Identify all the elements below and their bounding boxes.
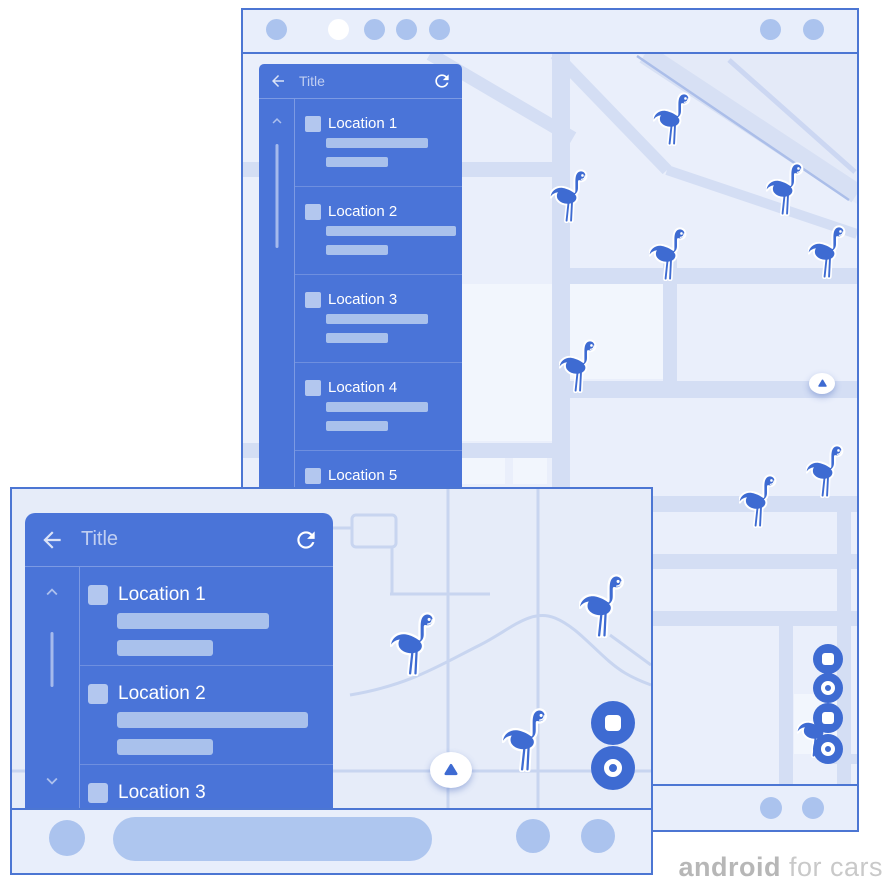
text-placeholder (326, 138, 428, 148)
place-icon (305, 380, 321, 396)
flamingo-marker-icon[interactable] (390, 612, 436, 676)
portrait-place-list-panel: Title Location 1 (259, 64, 462, 554)
place-icon (305, 292, 321, 308)
flamingo-marker-icon[interactable] (649, 227, 687, 281)
navbar-dot[interactable] (516, 819, 550, 853)
map-action-button-record[interactable] (813, 734, 843, 764)
navbar-pill[interactable] (113, 817, 432, 861)
panel-header: Title (25, 513, 333, 567)
item-label: Location 3 (118, 782, 206, 804)
item-label: Location 5 (328, 467, 397, 484)
map-action-button-stop[interactable] (813, 703, 843, 733)
list-item[interactable]: Location 1 (80, 567, 333, 666)
panel-header: Title (259, 64, 462, 99)
item-label: Location 2 (118, 683, 206, 705)
statusbar-dot[interactable] (396, 19, 417, 40)
item-label: Location 1 (328, 115, 397, 132)
location-list: Location 1 Location 2 Location 3 (80, 567, 333, 808)
text-placeholder (326, 314, 428, 324)
list-item[interactable]: Location 3 (80, 765, 333, 808)
landscape-map[interactable]: Title Location 1 (12, 489, 651, 808)
chevron-up-icon[interactable] (268, 112, 286, 130)
statusbar-dot[interactable] (803, 19, 824, 40)
text-placeholder (117, 613, 269, 629)
watermark-suffix: for cars (781, 852, 883, 882)
landscape-nav-bar (12, 808, 651, 873)
flamingo-marker-icon[interactable] (502, 708, 548, 772)
scroll-rail[interactable] (25, 567, 80, 808)
circle-icon (821, 681, 835, 695)
navigation-arrow-icon (441, 760, 461, 780)
navigation-arrow-icon (816, 377, 829, 390)
scrollbar-thumb[interactable] (51, 632, 54, 687)
circle-icon (604, 759, 622, 777)
refresh-icon[interactable] (293, 527, 319, 553)
place-icon (88, 783, 108, 803)
flamingo-marker-icon[interactable] (550, 169, 588, 223)
flamingo-marker-icon[interactable] (653, 92, 691, 146)
flamingo-marker-icon[interactable] (808, 225, 846, 279)
statusbar-dot-active[interactable] (328, 19, 349, 40)
text-placeholder (117, 739, 213, 755)
map-action-button-stop[interactable] (813, 644, 843, 674)
android-for-cars-watermark: android for cars (678, 852, 883, 883)
text-placeholder (117, 640, 213, 656)
location-list: Location 1 Location 2 Location 3 (295, 99, 462, 554)
navbar-dot[interactable] (802, 797, 824, 819)
list-item[interactable]: Location 1 (295, 99, 462, 187)
back-arrow-icon[interactable] (39, 527, 65, 553)
flamingo-marker-icon[interactable] (806, 444, 844, 498)
back-arrow-icon[interactable] (269, 72, 287, 90)
watermark-brand: android (678, 852, 781, 882)
flamingo-marker-icon[interactable] (739, 474, 777, 528)
place-icon (305, 468, 321, 484)
place-icon (88, 684, 108, 704)
list-item[interactable]: Location 4 (295, 363, 462, 451)
stop-icon (822, 653, 834, 665)
navbar-dot[interactable] (581, 819, 615, 853)
stop-icon (822, 712, 834, 724)
item-label: Location 1 (118, 584, 206, 606)
landscape-place-list-panel: Title Location 1 (25, 513, 333, 808)
flamingo-marker-icon[interactable] (766, 162, 804, 216)
scroll-rail[interactable] (259, 99, 295, 554)
list-item[interactable]: Location 3 (295, 275, 462, 363)
statusbar-dot[interactable] (364, 19, 385, 40)
scrollbar-thumb[interactable] (275, 144, 278, 248)
panel-title: Title (81, 528, 293, 551)
text-placeholder (117, 712, 308, 728)
text-placeholder (326, 226, 456, 236)
place-icon (305, 204, 321, 220)
compass-button[interactable] (809, 373, 835, 394)
flamingo-marker-icon[interactable] (579, 574, 625, 638)
chevron-up-icon[interactable] (41, 581, 63, 603)
compass-button[interactable] (430, 752, 472, 788)
refresh-icon[interactable] (432, 71, 452, 91)
text-placeholder (326, 333, 388, 343)
list-item[interactable]: Location 2 (80, 666, 333, 765)
stop-icon (605, 715, 621, 731)
text-placeholder (326, 421, 388, 431)
chevron-down-icon[interactable] (41, 770, 63, 792)
statusbar-dot[interactable] (266, 19, 287, 40)
landscape-car-screen: Title Location 1 (10, 487, 653, 875)
statusbar-dot[interactable] (429, 19, 450, 40)
statusbar-dot[interactable] (760, 19, 781, 40)
navbar-dot[interactable] (49, 820, 85, 856)
panel-title: Title (299, 73, 432, 89)
item-label: Location 4 (328, 379, 397, 396)
portrait-status-bar (243, 10, 857, 54)
item-label: Location 3 (328, 291, 397, 308)
text-placeholder (326, 245, 388, 255)
circle-icon (821, 742, 835, 756)
map-action-button-record[interactable] (813, 673, 843, 703)
place-icon (305, 116, 321, 132)
list-item[interactable]: Location 2 (295, 187, 462, 275)
design-canvas: Title Location 1 (0, 0, 894, 890)
navbar-dot[interactable] (760, 797, 782, 819)
map-action-button-record[interactable] (591, 746, 635, 790)
place-icon (88, 585, 108, 605)
text-placeholder (326, 157, 388, 167)
map-action-button-stop[interactable] (591, 701, 635, 745)
text-placeholder (326, 402, 428, 412)
flamingo-marker-icon[interactable] (559, 339, 597, 393)
item-label: Location 2 (328, 203, 397, 220)
